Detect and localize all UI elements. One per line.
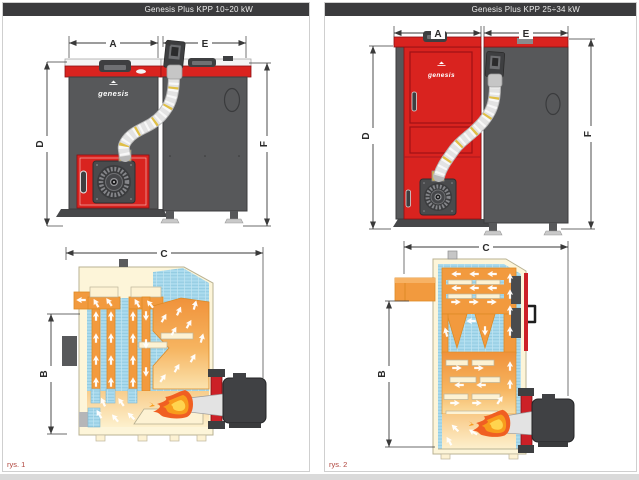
burner-fan	[97, 165, 131, 199]
dimension-B: B	[377, 301, 435, 447]
burner-sight-glass	[406, 190, 411, 207]
boiler-cross-section	[62, 259, 266, 441]
section-side-fitting	[62, 336, 77, 366]
dim-label-F: F	[259, 141, 270, 147]
boiler-base-plinth	[56, 209, 168, 217]
dim-label-C: C	[160, 249, 167, 260]
door-handle	[412, 92, 417, 111]
figure-1-drawing: genesis	[3, 16, 309, 473]
dim-label-E: E	[523, 29, 530, 40]
brand-logo-text: genesis	[427, 72, 455, 79]
boiler-cap-button	[136, 69, 146, 73]
section-chimney-stub	[119, 259, 128, 267]
hopper-foot	[166, 211, 174, 219]
dim-label-F: F	[583, 131, 594, 137]
page: Genesis Plus KPP 10÷20 kW	[0, 0, 639, 480]
boiler-cross-section	[395, 251, 574, 459]
hopper-foot	[230, 211, 238, 219]
dimension-D: D	[35, 62, 67, 226]
dim-label-C: C	[482, 243, 489, 254]
collector-cap	[131, 287, 161, 297]
figure-1-label: rys. 1	[7, 460, 25, 469]
burner-fan	[424, 183, 452, 211]
dim-label-B: B	[39, 370, 50, 377]
figure-2-label: rys. 2	[329, 460, 347, 469]
dimension-D: D	[361, 46, 393, 229]
collector-cap	[90, 287, 118, 297]
door-insulation-block	[511, 308, 521, 338]
figure-panel-1: Genesis Plus KPP 10÷20 kW	[2, 2, 310, 472]
burner-sight-glass	[81, 171, 87, 193]
dim-label-D: D	[35, 140, 46, 147]
section-step	[79, 412, 88, 427]
figure-panel-2: Genesis Plus KPP 25÷34 kW	[324, 2, 637, 472]
dim-label-D: D	[361, 132, 372, 139]
burner-motor	[223, 378, 266, 423]
hose-collar	[167, 65, 182, 79]
brand-logo-text: genesis	[97, 89, 129, 98]
figure-2-drawing: genesis	[325, 16, 636, 473]
hopper-foot	[489, 223, 497, 231]
burner-assembly	[77, 150, 149, 208]
dimension-A: A	[69, 36, 158, 58]
dim-label-B: B	[377, 370, 388, 377]
door-insulation-block	[511, 276, 521, 304]
dim-label-E: E	[202, 39, 209, 50]
hose-collar	[488, 74, 502, 87]
figure-2-title: Genesis Plus KPP 25÷34 kW	[472, 5, 580, 14]
dimension-B: B	[39, 314, 80, 434]
section-door-frame	[524, 273, 528, 351]
figure-1-title-bar: Genesis Plus KPP 10÷20 kW	[3, 3, 309, 16]
page-bottom-edge	[0, 474, 639, 480]
boiler-handle-slot	[104, 65, 126, 70]
boiler-base-plinth	[393, 219, 491, 227]
water-jacket-upper	[153, 268, 209, 298]
boiler-front-view: genesis	[56, 59, 168, 217]
hopper-cap-latch	[223, 56, 233, 61]
burner-tube	[189, 394, 223, 416]
dim-label-A: A	[109, 39, 116, 50]
section-door-handle	[528, 306, 535, 322]
dim-label-A: A	[434, 29, 441, 40]
hopper-foot	[549, 223, 557, 231]
figure-1-title: Genesis Plus KPP 10÷20 kW	[145, 5, 253, 14]
burner-motor	[532, 399, 574, 442]
figure-2-title-bar: Genesis Plus KPP 25÷34 kW	[325, 3, 636, 16]
section-chimney-stub	[448, 251, 457, 259]
